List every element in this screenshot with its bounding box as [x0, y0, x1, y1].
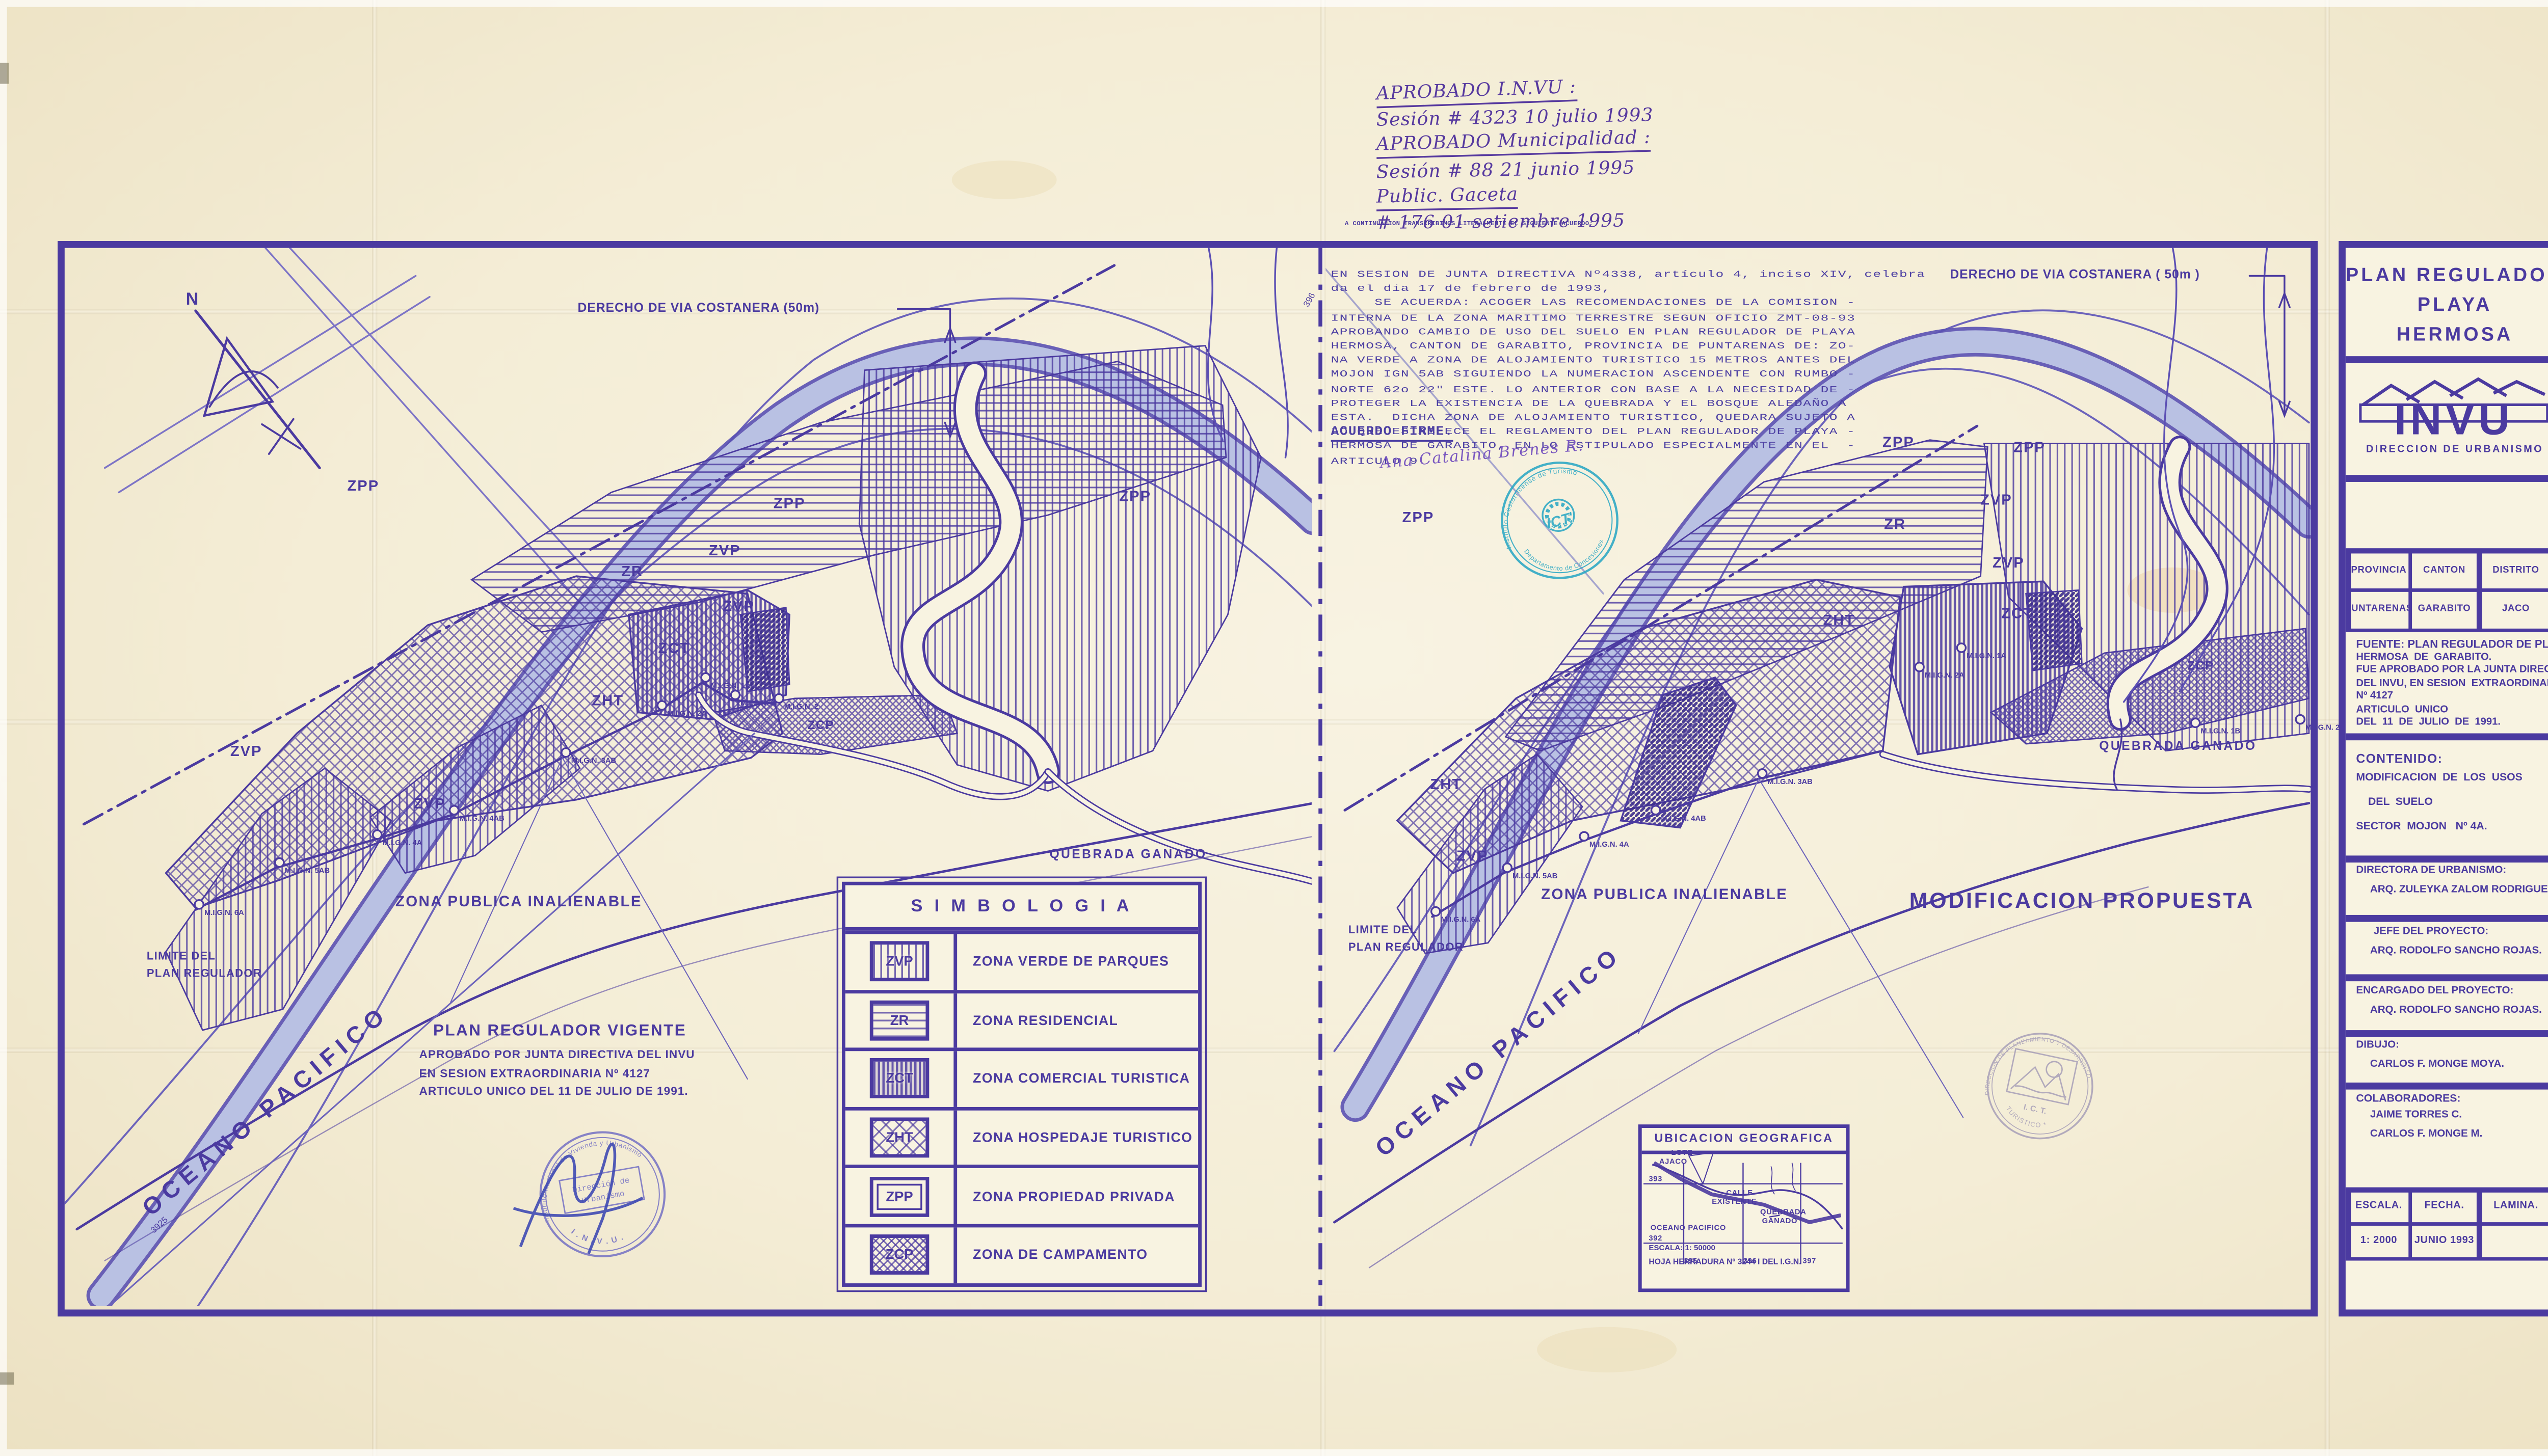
- text-line: JAIME TORRES C.: [2356, 1109, 2548, 1123]
- scan-nick: [0, 63, 9, 84]
- contenido-section: CONTENIDO: MODIFICACION DE LOS USOS DEL …: [2356, 751, 2548, 840]
- text-line: LO QUE ESTABLECE EL REGLAMENTO DEL PLAN …: [1331, 428, 1926, 438]
- text-line: DEL SUELO: [2356, 791, 2548, 816]
- fuente-section: FUENTE: PLAN REGULADOR DE PLAYAHERMOSA D…: [2356, 639, 2548, 731]
- location-box-title: UBICACION GEOGRAFICA: [1642, 1128, 1846, 1154]
- text-line: APROBADO POR JUNTA DIRECTIVA DEL INVU: [419, 1047, 695, 1066]
- text-line: DEL INVU, EN SESION EXTRAORDINARIA: [2356, 679, 2548, 692]
- location-sheet-ref: HOJA HERRADURA Nº 3244 I DEL I.G.N.: [1649, 1257, 1801, 1266]
- legend-swatch-zpp: ZPP: [870, 1176, 930, 1217]
- legend-row: ZPP ZONA PROPIEDAD PRIVADA: [845, 1165, 1198, 1224]
- text-line: HERMOSA, CANTON DE GARABITO, PROVINCIA D…: [1331, 342, 1926, 353]
- legend-label: ZONA VERDE DE PARQUES: [957, 934, 1198, 989]
- plan-vigente-lines: APROBADO POR JUNTA DIRECTIVA DEL INVUEN …: [419, 1047, 695, 1102]
- text-line: DEL 11 DE JULIO DE 1991.: [2356, 718, 2548, 731]
- canton-header: CANTON: [2412, 553, 2477, 588]
- text-line: SE ACUERDA: ACOGER LAS RECOMENDACIONES D…: [1331, 299, 1926, 309]
- admin-table: PROVINCIA CANTON DISTRITO PUNTARENAS GAR…: [2346, 548, 2548, 632]
- distrito-value: JACO: [2481, 592, 2548, 628]
- text-line: EN SESION DE JUNTA DIRECTIVA Nº4338, art…: [1331, 271, 1926, 281]
- text-line: FUENTE: PLAN REGULADOR DE PLAYA: [2356, 639, 2548, 652]
- plan-regulador-playa-hermosa-sheet: Instituto Nacional de Vivienda y Urbanis…: [0, 0, 2548, 1456]
- directora-section: DIRECTORA DE URBANISMO: ARQ. ZULEYKA ZAL…: [2356, 866, 2548, 896]
- text-line: INTERNA DE LA ZONA MARITIMO TERRESTRE SE…: [1331, 314, 1926, 324]
- legend-label: ZONA DE CAMPAMENTO: [957, 1227, 1198, 1282]
- text-line: NA VERDE A ZONA DE ALOJAMIENTO TURISTICO…: [1331, 357, 1926, 367]
- footer-table: ESCALA. FECHA. LAMINA. 1: 2000 JUNIO 199…: [2346, 1188, 2548, 1261]
- legend-row: ZHT ZONA HOSPEDAJE TURISTICO: [845, 1107, 1198, 1165]
- text-line: FUE APROBADO POR LA JUNTA DIRECTIVA: [2356, 665, 2548, 679]
- legend-swatch-zvp: ZVP: [870, 941, 930, 982]
- legend-box: S I M B O L O G I A ZVP ZONA VERDE DE PA…: [842, 882, 1202, 1287]
- text-line: PROTEGER LA EXISTENCIA DE LA QUEBRADA Y …: [1331, 399, 1926, 410]
- dibujo-section: DIBUJO: CARLOS F. MONGE MOYA.: [2356, 1041, 2548, 1070]
- acuerdo-text-block: EN SESION DE JUNTA DIRECTIVA Nº4338, art…: [1331, 271, 1926, 441]
- legend-swatch-zr: ZR: [870, 1000, 930, 1040]
- plan-vigente-heading: PLAN REGULADOR VIGENTE: [433, 1021, 695, 1039]
- location-scale: ESCALA: 1: 50000: [1649, 1243, 1715, 1252]
- text-line: Sesión # 88 21 junio 1995: [1376, 157, 1654, 184]
- text-line: APROBADO Municipalidad :: [1376, 128, 1651, 159]
- colaboradores-section: COLABORADORES: JAIME TORRES C.CARLOS F. …: [2356, 1093, 2548, 1142]
- legend-swatch-zct: ZCT: [870, 1059, 930, 1099]
- typed-header-line: A CONTINUACION TRANSCRIBIMOS LITERALMENT…: [1345, 222, 1593, 229]
- fecha-header: FECHA.: [2412, 1192, 2477, 1222]
- legend-row: ZCP ZONA DE CAMPAMENTO: [845, 1224, 1198, 1282]
- legend-swatch-zcp: ZCP: [870, 1235, 930, 1275]
- lamina-header: LAMINA.: [2481, 1192, 2548, 1222]
- svg-text:INVU: INVU: [2394, 395, 2513, 443]
- lamina-value: [2481, 1226, 2548, 1256]
- text-line: EN SESION EXTRAORDINARIA Nº 4127: [419, 1066, 695, 1084]
- legend-swatch-zht: ZHT: [870, 1118, 930, 1158]
- text-line: Public. Gaceta: [1376, 184, 1518, 210]
- invu-logo-subtitle: DIRECCION DE URBANISMO: [2346, 445, 2548, 456]
- provincia-value: PUNTARENAS: [2350, 592, 2407, 628]
- plan-title: PLAN REGULADOR PLAYA HERMOSA: [2346, 262, 2548, 351]
- escala-value: 1: 2000: [2350, 1226, 2407, 1256]
- jefe-section: JEFE DEL PROYECTO: ARQ. RODOLFO SANCHO R…: [2356, 927, 2548, 957]
- text-line: NORTE 62o 22" ESTE. LO ANTERIOR CON BASE…: [1331, 385, 1926, 395]
- plan-vigente-note: PLAN REGULADOR VIGENTE APROBADO POR JUNT…: [419, 1021, 695, 1102]
- text-line: da el día 17 de febrero de 1993,: [1331, 285, 1926, 295]
- legend-row: ZR ZONA RESIDENCIAL: [845, 989, 1198, 1048]
- text-line: CARLOS F. MONGE M.: [2356, 1127, 2548, 1142]
- fecha-value: JUNIO 1993: [2412, 1226, 2477, 1256]
- text-line: SECTOR MOJON Nº 4A.: [2356, 816, 2548, 840]
- invu-logo: INVU: [2358, 373, 2548, 443]
- legend-label: ZONA PROPIEDAD PRIVADA: [957, 1169, 1198, 1224]
- legend-label: ZONA HOSPEDAJE TURISTICO: [957, 1110, 1198, 1165]
- text-line: HERMOSA DE GARABITO.: [2356, 652, 2548, 665]
- canton-value: GARABITO: [2412, 592, 2477, 628]
- legend-label: ZONA COMERCIAL TURISTICA: [957, 1051, 1198, 1107]
- provincia-header: PROVINCIA: [2350, 553, 2407, 588]
- scan-nick: [0, 1372, 14, 1385]
- text-line: ESTA. DICHA ZONA DE ALOJAMIENTO TURISTIC…: [1331, 414, 1926, 424]
- text-line: ARTICULO UNICO: [2356, 705, 2548, 718]
- text-line: APROBANDO CAMBIO DE USO DEL SUELO EN PLA…: [1331, 328, 1926, 338]
- location-box: UBICACION GEOGRAFICA ESCALA: 1: 50000 HO…: [1638, 1124, 1850, 1292]
- text-line: MOJON IGN 5AB SIGUIENDO LA NUMERACION AS…: [1331, 371, 1926, 381]
- encargado-section: ENCARGADO DEL PROYECTO: ARQ. RODOLFO SAN…: [2356, 986, 2548, 1016]
- handwritten-approvals: APROBADO I.N.VU :Sesión # 4323 10 julio …: [1376, 84, 1654, 238]
- text-line: MODIFICACION DE LOS USOS: [2356, 767, 2548, 791]
- legend-label: ZONA RESIDENCIAL: [957, 993, 1198, 1048]
- escala-header: ESCALA.: [2350, 1192, 2407, 1222]
- text-line: HERMOSA DE GARABITO, EN LO ESTIPULADO ES…: [1331, 443, 1926, 453]
- text-line: ARTICULO UNICO DEL 11 DE JULIO DE 1991.: [419, 1084, 695, 1102]
- legend-title: S I M B O L O G I A: [845, 885, 1198, 931]
- text-line: Nº 4127: [2356, 691, 2548, 705]
- legend-row: ZVP ZONA VERDE DE PARQUES: [845, 931, 1198, 989]
- title-block: PLAN REGULADOR PLAYA HERMOSA INVU DIRECC…: [2339, 241, 2548, 1316]
- legend-row: ZCT ZONA COMERCIAL TURISTICA: [845, 1048, 1198, 1107]
- distrito-header: DISTRITO: [2481, 553, 2548, 588]
